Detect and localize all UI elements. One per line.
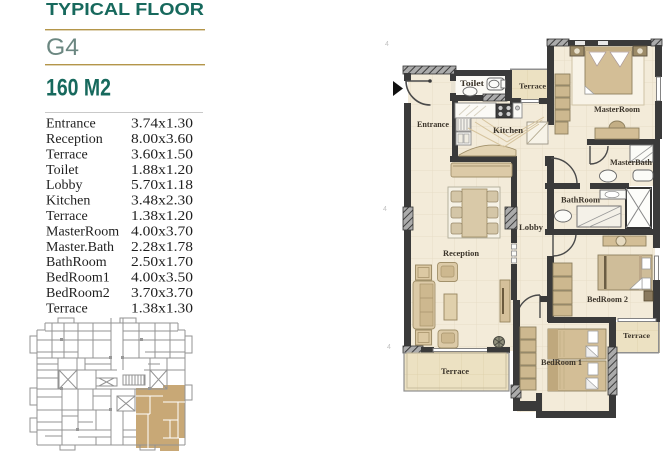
- svg-text:BedRoom1: BedRoom1: [46, 271, 110, 286]
- svg-text:4.00x3.50: 4.00x3.50: [131, 271, 193, 286]
- svg-text:Terrace: Terrace: [46, 147, 88, 162]
- svg-text:5.70x1.18: 5.70x1.18: [131, 178, 193, 193]
- svg-text:3.60x1.50: 3.60x1.50: [131, 147, 193, 162]
- svg-text:1.38x1.20: 1.38x1.20: [131, 209, 193, 224]
- svg-text:Terrace: Terrace: [623, 331, 651, 340]
- svg-text:Lobby: Lobby: [519, 222, 544, 232]
- svg-text:Terrace: Terrace: [441, 366, 469, 376]
- svg-text:Terrace: Terrace: [46, 301, 88, 316]
- svg-text:G4: G4: [46, 34, 79, 61]
- svg-text:4.00x3.70: 4.00x3.70: [131, 224, 193, 239]
- svg-text:4: 4: [387, 344, 391, 351]
- svg-text:Terrace: Terrace: [519, 82, 547, 91]
- svg-text:MasterRoom: MasterRoom: [46, 224, 119, 239]
- svg-text:Reception: Reception: [46, 132, 103, 147]
- svg-text:8.00x3.60: 8.00x3.60: [131, 132, 193, 147]
- svg-text:BedRoom 2: BedRoom 2: [587, 294, 628, 304]
- svg-text:BathRoom: BathRoom: [46, 255, 107, 270]
- svg-text:1.88x1.20: 1.88x1.20: [131, 163, 193, 178]
- svg-text:BathRoom: BathRoom: [561, 195, 600, 205]
- svg-text:2.50x1.70: 2.50x1.70: [131, 255, 193, 270]
- svg-text:Lobby: Lobby: [46, 178, 83, 193]
- svg-text:Toilet: Toilet: [460, 78, 484, 88]
- svg-text:Entrance: Entrance: [417, 119, 449, 129]
- svg-text:2.28x1.78: 2.28x1.78: [131, 240, 193, 255]
- svg-text:4: 4: [385, 41, 389, 48]
- svg-text:BedRoom2: BedRoom2: [46, 286, 110, 301]
- svg-text:Kitchen: Kitchen: [46, 194, 90, 209]
- svg-text:Entrance: Entrance: [46, 117, 96, 132]
- svg-text:Terrace: Terrace: [46, 209, 88, 224]
- svg-text:MasterBath: MasterBath: [610, 157, 652, 167]
- svg-text:MasterRoom: MasterRoom: [594, 104, 640, 114]
- svg-text:Toilet: Toilet: [46, 163, 79, 178]
- svg-text:4: 4: [383, 206, 387, 213]
- svg-text:BedRoom 1: BedRoom 1: [541, 357, 582, 367]
- svg-text:3.74x1.30: 3.74x1.30: [131, 117, 193, 132]
- svg-text:TYPICAL FLOOR: TYPICAL FLOOR: [46, 0, 204, 19]
- svg-text:Kitchen: Kitchen: [493, 125, 523, 135]
- svg-text:Master.Bath: Master.Bath: [46, 240, 114, 255]
- svg-text:3.48x2.30: 3.48x2.30: [131, 194, 193, 209]
- svg-text:160 M2: 160 M2: [46, 75, 111, 102]
- svg-text:1.38x1.30: 1.38x1.30: [131, 301, 193, 316]
- svg-text:Reception: Reception: [443, 248, 479, 258]
- svg-text:3.70x3.70: 3.70x3.70: [131, 286, 193, 301]
